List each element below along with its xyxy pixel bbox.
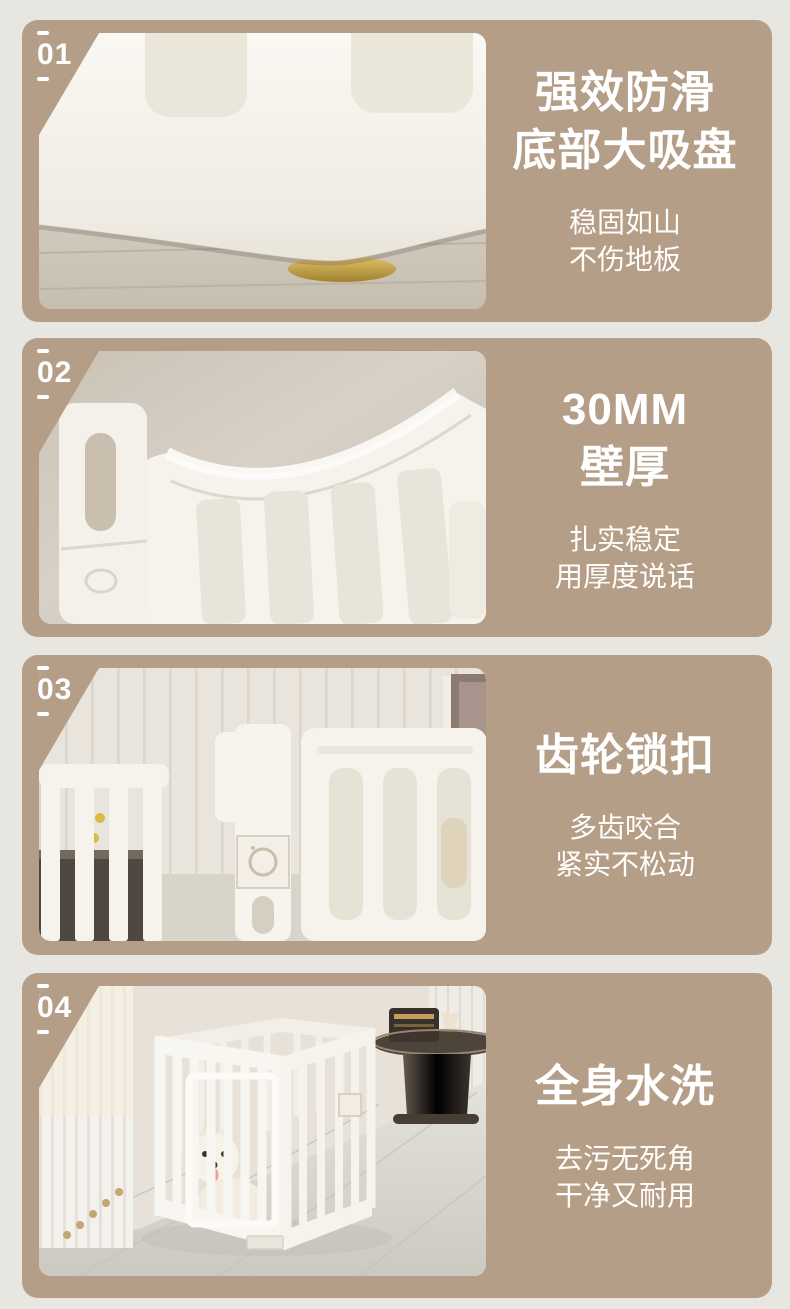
feature-photo-wall-thickness	[39, 351, 486, 624]
lock-slot	[252, 896, 274, 934]
badge-dash	[37, 984, 49, 988]
feature-card-gear-lock: 03 齿轮锁扣 多齿咬合 紧实不松动	[22, 655, 772, 955]
right-connector	[449, 501, 486, 619]
subtitle-line: 稳固如山	[569, 204, 681, 241]
badge-dash	[37, 712, 49, 716]
feature-card-wall-thickness: 02 30MM 壁厚 扎实稳定 用厚度说话	[22, 338, 772, 637]
section-number: 04	[37, 993, 72, 1023]
feature-title: 强效防滑 底部大吸盘	[513, 64, 738, 180]
title-line: 全身水洗	[535, 1058, 715, 1116]
feature-title: 30MM 壁厚	[562, 381, 688, 497]
section-number-badge: 01	[37, 31, 72, 81]
badge-dash	[37, 31, 49, 35]
section-number-badge: 04	[37, 984, 72, 1034]
handle-slot	[351, 33, 473, 113]
feature-subtitle: 去污无死角 干净又耐用	[555, 1140, 695, 1214]
pet-playpen	[159, 1018, 372, 1250]
product-detail-page: 01 强效防滑 底部大吸盘 稳固如山 不伤地板	[0, 0, 790, 1309]
subtitle-line: 用厚度说话	[555, 558, 695, 595]
title-line: 壁厚	[562, 439, 688, 497]
title-line: 30MM	[562, 381, 688, 439]
feature-card-antislip: 01 强效防滑 底部大吸盘 稳固如山 不伤地板	[22, 20, 772, 322]
feature-subtitle: 多齿咬合 紧实不松动	[555, 809, 695, 883]
handle-slot	[145, 33, 247, 117]
section-number-badge: 03	[37, 666, 72, 716]
badge-dash	[37, 666, 49, 670]
feature-title: 齿轮锁扣	[535, 727, 715, 785]
feature-subtitle: 稳固如山 不伤地板	[569, 204, 681, 278]
feature-subtitle: 扎实稳定 用厚度说话	[555, 521, 695, 595]
feature-photo-washable-scene	[39, 986, 486, 1276]
suction-base-illustration	[39, 33, 486, 309]
subtitle-line: 扎实稳定	[555, 521, 695, 558]
feature-card-washable: 04 全身水洗 去污无死角 干净又耐用	[22, 973, 772, 1298]
feature-title: 全身水洗	[535, 1058, 715, 1116]
badge-dash	[37, 77, 49, 81]
badge-dash	[37, 349, 49, 353]
panel-lock	[339, 1094, 361, 1116]
feature-photo-gear-lock	[39, 668, 486, 941]
subtitle-line: 干净又耐用	[555, 1177, 695, 1214]
post-slot	[85, 433, 116, 531]
subtitle-line: 多齿咬合	[555, 809, 695, 846]
feature-photo-suction-base	[39, 33, 486, 309]
gear-lock-illustration	[39, 668, 486, 941]
feature-text: 强效防滑 底部大吸盘 稳固如山 不伤地板	[486, 20, 764, 322]
section-number: 03	[37, 675, 72, 705]
subtitle-line: 去污无死角	[555, 1140, 695, 1177]
feature-text: 30MM 壁厚 扎实稳定 用厚度说话	[486, 338, 764, 637]
badge-dash	[37, 395, 49, 399]
table-pedestal	[403, 1054, 471, 1116]
section-number: 01	[37, 40, 72, 70]
title-line: 强效防滑	[513, 64, 738, 122]
section-number-badge: 02	[37, 349, 72, 399]
washable-scene-illustration	[39, 986, 486, 1276]
subtitle-line: 不伤地板	[569, 241, 681, 278]
wall-thickness-illustration	[39, 351, 486, 624]
title-line: 齿轮锁扣	[535, 727, 715, 785]
title-line: 底部大吸盘	[513, 122, 738, 180]
gear-lock-plate	[237, 836, 289, 888]
right-fence-panel	[301, 728, 486, 941]
section-number: 02	[37, 358, 72, 388]
feature-text: 齿轮锁扣 多齿咬合 紧实不松动	[486, 655, 764, 955]
pen-base-label	[247, 1236, 283, 1249]
feature-text: 全身水洗 去污无死角 干净又耐用	[486, 973, 764, 1298]
badge-dash	[37, 1030, 49, 1034]
subtitle-line: 紧实不松动	[555, 846, 695, 883]
